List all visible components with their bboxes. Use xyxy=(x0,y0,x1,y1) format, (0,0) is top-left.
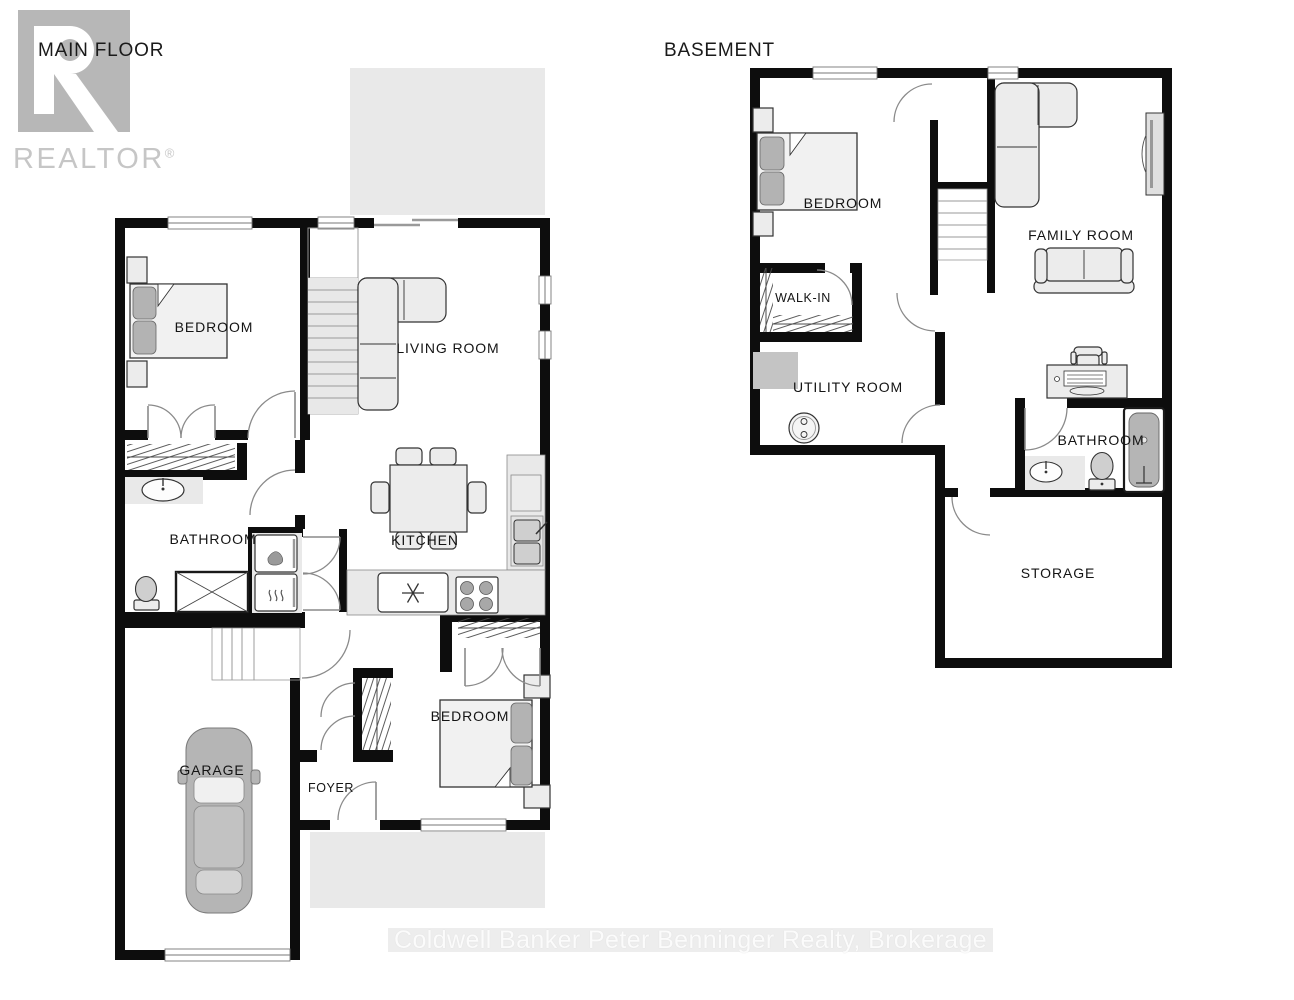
patio-slider-icon xyxy=(374,220,458,225)
main-floor-plan xyxy=(115,68,551,961)
toilet-icon xyxy=(1089,453,1115,491)
label-main-living-room: LIVING ROOM xyxy=(396,340,499,356)
car-icon xyxy=(178,728,260,913)
closet-hatch xyxy=(362,678,391,750)
basement-plan xyxy=(750,67,1172,668)
garage-stairs-icon xyxy=(212,628,300,680)
desk-icon xyxy=(1047,347,1127,398)
registered-mark: ® xyxy=(165,145,175,160)
bathroom-vanity-sink-icon xyxy=(125,477,203,504)
brokerage-watermark: Coldwell Banker Peter Benninger Realty, … xyxy=(388,928,993,952)
label-basement-family-room: FAMILY ROOM xyxy=(1028,227,1134,243)
toilet-icon xyxy=(134,577,159,611)
main-stairs-icon xyxy=(308,228,358,414)
label-basement-walk-in: WALK-IN xyxy=(775,291,831,305)
sectional-sofa-icon xyxy=(995,83,1077,207)
porch-area xyxy=(310,832,545,908)
water-heater-icon xyxy=(789,413,819,443)
label-main-bedroom-upper: BEDROOM xyxy=(175,319,254,335)
tv-icon xyxy=(1142,113,1164,195)
label-main-kitchen: KITCHEN xyxy=(391,532,459,548)
stove-icon xyxy=(456,577,498,613)
fridge-icon xyxy=(378,573,448,612)
label-main-garage: GARAGE xyxy=(179,762,244,778)
bathtub-icon xyxy=(1124,408,1164,492)
floorplan-page: { "titles": { "main_floor": "MAIN FLOOR"… xyxy=(0,0,1294,1000)
shower-icon xyxy=(176,572,248,612)
bathroom-vanity-sink-icon xyxy=(1025,456,1085,490)
main-floor-title: MAIN FLOOR xyxy=(38,40,164,62)
dryer-icon xyxy=(255,574,297,611)
label-main-bedroom-lower: BEDROOM xyxy=(431,708,510,724)
label-basement-storage: STORAGE xyxy=(1021,565,1096,581)
furnace-icon xyxy=(753,352,798,389)
deck-area xyxy=(350,68,545,215)
label-basement-bathroom: BATHROOM xyxy=(1057,432,1144,448)
kitchen-sink-icon xyxy=(511,516,547,566)
basement-title: BASEMENT xyxy=(664,40,775,62)
closet-hatch xyxy=(127,444,235,470)
realtor-logo-text: REALTOR® xyxy=(13,143,174,176)
label-basement-utility-room: UTILITY ROOM xyxy=(793,379,903,395)
realtor-logo-icon xyxy=(18,10,130,132)
label-main-bathroom: BATHROOM xyxy=(169,531,256,547)
label-main-foyer: FOYER xyxy=(308,781,354,795)
bed-icon xyxy=(753,108,857,236)
loveseat-icon xyxy=(1034,248,1134,293)
floorplan-drawing xyxy=(0,0,1294,1000)
bed-icon xyxy=(440,675,550,808)
closet-hatch xyxy=(458,618,540,638)
label-basement-bedroom: BEDROOM xyxy=(804,195,883,211)
basement-stairs-icon xyxy=(938,189,987,260)
